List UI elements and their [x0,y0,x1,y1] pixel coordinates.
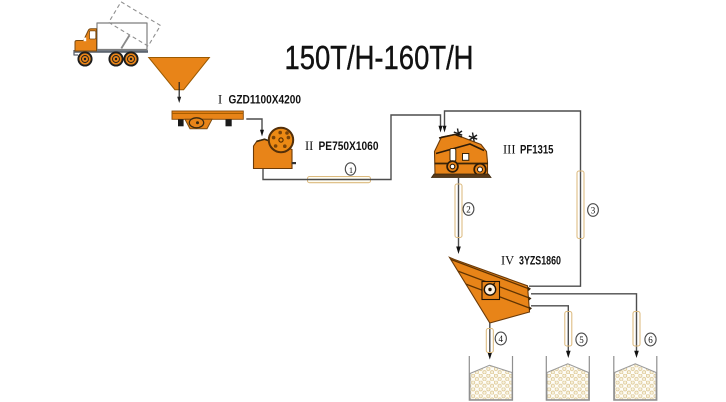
svg-text:2: 2 [466,205,471,215]
svg-text:4: 4 [499,334,504,344]
svg-text:PF1315: PF1315 [520,143,554,157]
svg-text:I: I [218,93,222,107]
svg-text:IV: IV [501,254,514,268]
svg-text:3: 3 [591,206,596,216]
svg-text:1: 1 [349,165,353,175]
svg-text:3YZS1860: 3YZS1860 [519,254,561,268]
svg-text:5: 5 [579,335,584,345]
svg-text:150T/H-160T/H: 150T/H-160T/H [285,39,474,76]
svg-text:II: II [305,139,313,153]
svg-text:GZD1100X4200: GZD1100X4200 [229,93,302,107]
svg-text:6: 6 [648,335,653,345]
svg-text:PE750X1060: PE750X1060 [319,139,379,153]
svg-text:III: III [503,143,516,157]
